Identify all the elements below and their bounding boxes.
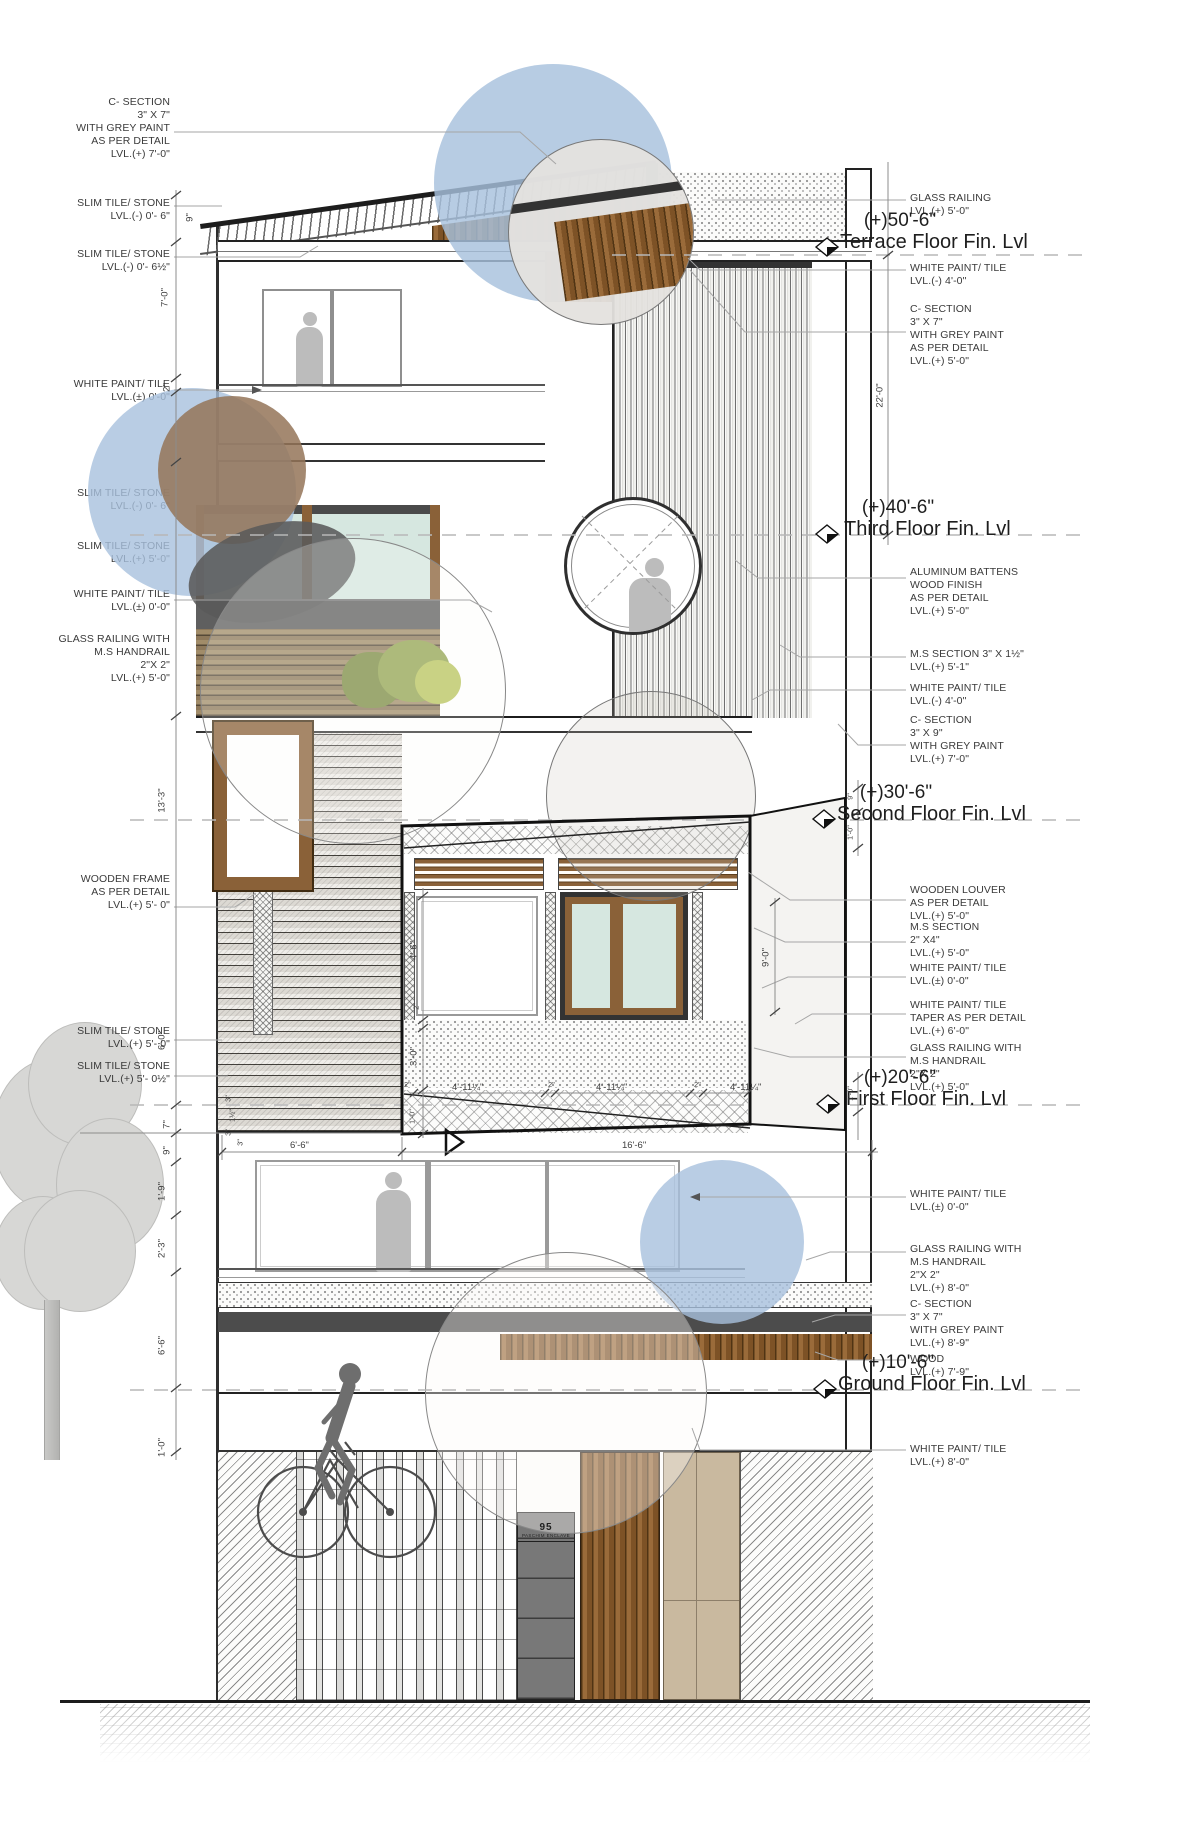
level-elevation: (+)10'-6" <box>828 1352 968 1374</box>
dim-label: 1'-9" <box>157 1170 168 1214</box>
annotation-white-paint: WHITE PAINT/ TILE LVL.(-) 4'-0" <box>910 682 1006 708</box>
dim-label: 6'-0" <box>157 1019 168 1063</box>
dim-label: 6'-6" <box>157 1324 168 1368</box>
dim-label: 2" <box>162 366 173 410</box>
dim-label: 4'-11¼" <box>596 1082 627 1093</box>
dim-label: 3'-0" <box>409 1035 420 1079</box>
address-number: 95 <box>517 1522 575 1533</box>
address-sign: 95 PASCHIM ENCLAVE <box>517 1522 575 1542</box>
dim-label: 22'-0" <box>875 374 886 418</box>
dim-label: 3" <box>224 1111 233 1155</box>
dim-label: 2" <box>548 1080 555 1089</box>
dim-label: 7'-0" <box>160 276 171 320</box>
dim-label: 13'-3" <box>157 779 168 823</box>
address-name: PASCHIM ENCLAVE <box>517 1533 575 1542</box>
dim-label: 6'-6" <box>290 1140 309 1151</box>
level-elevation: (+)50'-6" <box>830 210 970 232</box>
dim-label: 9" <box>185 196 196 240</box>
dim-label: 2" <box>694 1080 701 1089</box>
annotation-wooden-louver: WOODEN LOUVER AS PER DETAIL LVL.(+) 5'-0… <box>910 884 1006 923</box>
annotation-ms-section: M.S SECTION 2" X4" LVL.(+) 5'-0" <box>910 921 979 960</box>
level-elevation: (+)40'-6" <box>828 497 968 519</box>
level-name: First Floor Fin. Lvl <box>846 1088 1006 1111</box>
level-name: Third Floor Fin. Lvl <box>844 518 1011 541</box>
level-name: Terrace Floor Fin. Lvl <box>840 231 1028 254</box>
taper-line <box>404 1094 750 1128</box>
leader-lines-left <box>174 132 556 1076</box>
annotation-white-paint: WHITE PAINT/ TILE LVL.(±) 0'-0" <box>910 962 1006 988</box>
annotation-white-paint: WHITE PAINT/ TILE LVL.(+) 8'-0" <box>910 1443 1006 1469</box>
dim-label: 1'-0" <box>408 1095 417 1139</box>
dim-label: 9'-0" <box>761 936 772 980</box>
dim-label: 3" <box>236 1121 245 1165</box>
dim-label: 16'-6" <box>622 1140 646 1151</box>
dim-label: 2" <box>404 1080 411 1089</box>
level-name: Ground Floor Fin. Lvl <box>838 1373 1026 1396</box>
elevation-drawing: C- SECTION 3" X 7" WITH GREY PAINT AS PE… <box>0 0 1200 1829</box>
annotation-glass-railing: GLASS RAILING WITH M.S HANDRAIL 2"X 2" L… <box>910 1243 1022 1295</box>
annotation-c-section: C- SECTION 3" X 7" WITH GREY PAINT AS PE… <box>910 303 1004 368</box>
leader-arrowhead <box>690 1193 700 1201</box>
dim-label: 4'-11¼" <box>452 1082 483 1093</box>
leader-arrowhead <box>252 386 262 394</box>
annotation-c-section: C- SECTION 3" X 7" WITH GREY PAINT LVL.(… <box>910 1298 1004 1350</box>
dim-label: 9" <box>162 1129 173 1173</box>
dim-label: 4'-6" <box>409 929 420 973</box>
dim-label: 4'-11¼" <box>730 1082 761 1093</box>
annotation-white-paint: WHITE PAINT/ TILE LVL.(-) 4'-0" <box>910 262 1006 288</box>
dim-label: 1'-0" <box>846 1072 855 1116</box>
annotation-c-section: C- SECTION 3" X 9" WITH GREY PAINT LVL.(… <box>910 714 1004 766</box>
dim-label: 2'-3" <box>157 1227 168 1271</box>
dim-label: 2" <box>412 985 421 1029</box>
level-name: Second Floor Fin. Lvl <box>837 803 1026 826</box>
annotation-aluminum-battens: ALUMINUM BATTENS WOOD FINISH AS PER DETA… <box>910 566 1018 618</box>
linework-overlay <box>0 0 1200 1829</box>
annotation-ms-section: M.S SECTION 3" X 1½" LVL.(+) 5'-1" <box>910 648 1024 674</box>
dimension-lines <box>80 162 888 1460</box>
dim-label: 1'-0" <box>846 811 855 855</box>
cyclist <box>258 1363 435 1557</box>
dim-label: 1'-0" <box>157 1426 168 1470</box>
annotation-white-paint: WHITE PAINT/ TILE LVL.(±) 0'-0" <box>910 1188 1006 1214</box>
annotation-white-paint-taper: WHITE PAINT/ TILE TAPER AS PER DETAIL LV… <box>910 999 1026 1038</box>
